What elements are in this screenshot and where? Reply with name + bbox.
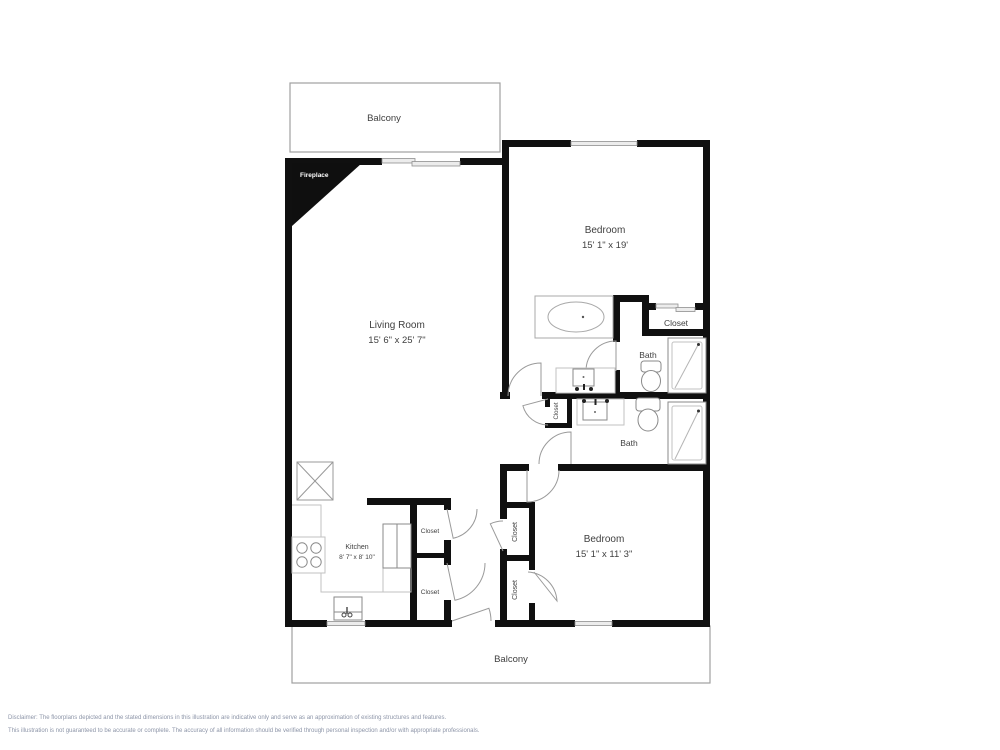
dims-living-room: 15' 6" x 25' 7" xyxy=(368,335,425,346)
dims-kitchen: 8' 7" x 8' 10" xyxy=(339,554,375,561)
label-closet-bedroom2-upper: Closet xyxy=(512,522,519,542)
stove xyxy=(292,537,325,573)
balcony-top-label: Balcony xyxy=(367,113,401,124)
balcony-top: Balcony xyxy=(290,83,500,152)
label-bedroom-1: Bedroom xyxy=(585,225,626,236)
label-closet-bedroom2-lower: Closet xyxy=(512,580,519,600)
door-balcony xyxy=(452,608,491,621)
balcony-bottom: Balcony xyxy=(292,626,710,683)
door-master-suite xyxy=(508,363,541,396)
shower-hall xyxy=(668,402,706,464)
label-closet-kitchen-upper: Closet xyxy=(421,528,440,535)
wall-bedroom2-closets-east xyxy=(529,502,535,627)
label-kitchen: Kitchen xyxy=(345,544,368,551)
garden-tub xyxy=(535,296,613,338)
refrigerator xyxy=(383,524,411,568)
label-closet-master: Closet xyxy=(664,318,689,328)
vanity-sink-master xyxy=(556,368,615,393)
sliding-door-closet-panel2 xyxy=(676,308,695,312)
door-hall-bath xyxy=(539,432,571,464)
balcony-bottom-label: Balcony xyxy=(494,654,528,665)
fireplace-label: Fireplace xyxy=(300,172,329,179)
label-bath-master: Bath xyxy=(639,350,657,360)
shower-master xyxy=(668,338,706,393)
sliding-door-closet-panel1 xyxy=(656,304,678,308)
door-master-bath xyxy=(586,341,616,371)
toilet-master xyxy=(641,361,661,392)
wall-left xyxy=(285,158,292,627)
dims-bedroom-2: 15' 1" x 11' 3" xyxy=(576,549,633,560)
kitchen-sink xyxy=(334,597,362,620)
dims-bedroom-1: 15' 1" x 19' xyxy=(582,240,628,251)
sliding-door-living-panel1 xyxy=(382,159,415,164)
label-living-room: Living Room xyxy=(369,320,425,331)
door-bedroom2 xyxy=(527,470,559,502)
window-kitchen xyxy=(327,622,365,626)
label-closet-hall-small: Closet xyxy=(554,402,560,419)
windows xyxy=(327,142,695,626)
disclaimer-line-1: Disclaimer: The floorplans depicted and … xyxy=(8,715,446,721)
floor-plan-drawing: Balcony Balcony xyxy=(0,0,1000,750)
wall-bedroom1-left xyxy=(502,140,509,399)
door-hall-closet xyxy=(523,399,548,425)
disclaimer: Disclaimer: The floorplans depicted and … xyxy=(8,715,480,734)
wall-bedroom2-top xyxy=(558,464,710,471)
floor-plan-page: Balcony Balcony xyxy=(0,0,1000,750)
toilet-hall xyxy=(636,398,660,431)
door-bedroom2-closet-upper xyxy=(490,521,503,551)
wall-openings xyxy=(327,140,695,627)
window-bedroom1 xyxy=(571,142,637,146)
window-bedroom2 xyxy=(575,622,612,626)
door-kitchen-closet-upper xyxy=(447,509,477,538)
disclaimer-line-2: This illustration is not guaranteed to b… xyxy=(8,728,480,734)
label-bath-hall: Bath xyxy=(620,438,638,448)
wall-kitchen-top xyxy=(367,498,451,505)
label-bedroom-2: Bedroom xyxy=(584,534,625,545)
fireplace: Fireplace xyxy=(292,163,362,226)
vanity-sink-hall xyxy=(577,399,624,425)
wall-closet-master-bottom xyxy=(642,329,710,336)
door-kitchen-closet-lower xyxy=(447,563,485,600)
label-closet-kitchen-lower: Closet xyxy=(421,589,440,596)
sliding-door-living-panel2 xyxy=(412,162,460,167)
washer-dryer xyxy=(297,462,333,500)
